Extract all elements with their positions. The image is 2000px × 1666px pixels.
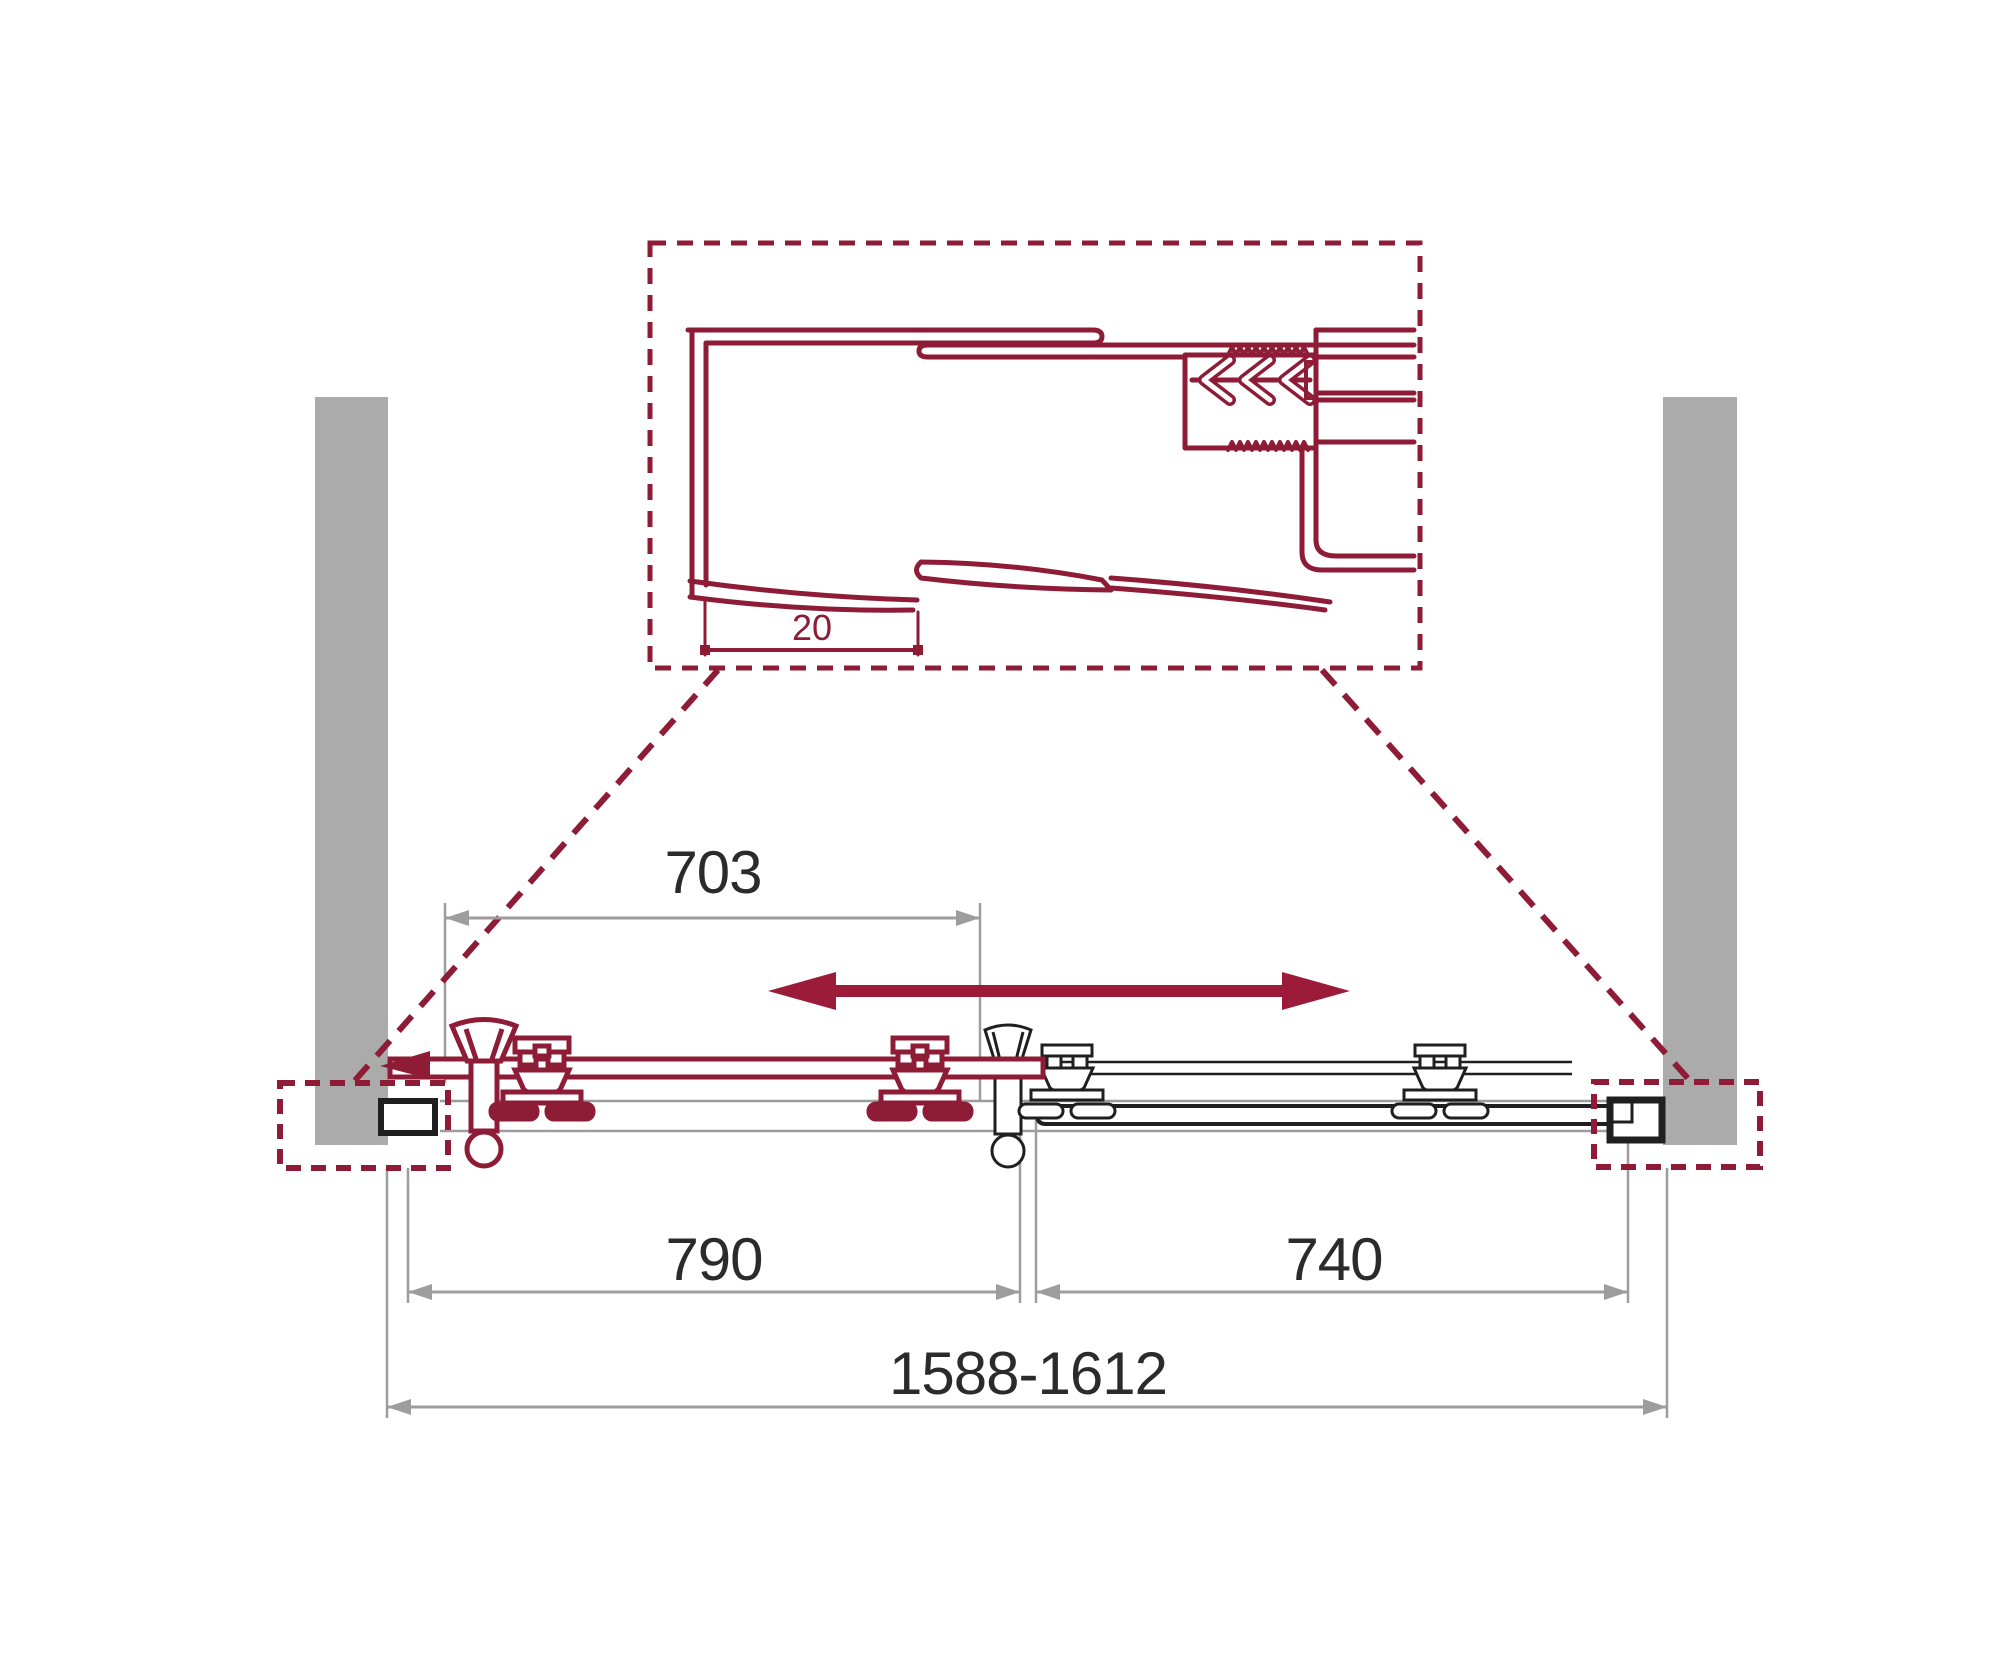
profile-right-double — [1316, 393, 1414, 400]
bottom-seal-right — [1111, 578, 1330, 610]
bottom-seal-left — [690, 581, 917, 610]
profile-top-rail-lower — [919, 345, 1414, 357]
roller-wheel — [1071, 1104, 1115, 1118]
arrowhead-icon — [387, 1399, 411, 1415]
roller-wheel — [1392, 1104, 1436, 1118]
roller-wheel — [547, 1104, 593, 1119]
profile-channel-inner — [1316, 448, 1414, 556]
wall-profile-right — [1610, 1100, 1662, 1140]
wall-right — [1663, 397, 1737, 1145]
callout-line-right — [1322, 670, 1693, 1084]
slide-direction-arrow-icon — [768, 972, 1350, 1010]
dimension-label-overall: 1588-1612 — [889, 1340, 1167, 1407]
fixed-panel-glass — [1037, 1106, 1612, 1124]
shower-door-diagram: 20 — [0, 0, 2000, 1666]
diagram-canvas: 20 — [0, 0, 2000, 1666]
sliding-door — [380, 1020, 1043, 1167]
fixed-panel-track — [1047, 1062, 1572, 1074]
fixed-panel-knob — [985, 1025, 1031, 1167]
bottom-seal-flipper — [917, 562, 1112, 590]
arrowhead-icon — [1604, 1284, 1628, 1300]
roller-wheel — [925, 1104, 971, 1119]
dimension-label-790: 790 — [665, 1226, 762, 1293]
profile-top-rail-upper — [688, 330, 1102, 343]
dimension-label-703: 703 — [664, 839, 761, 906]
roller-wheel — [1019, 1104, 1063, 1118]
arrowhead-icon — [996, 1284, 1020, 1300]
arrowhead-icon — [445, 910, 469, 926]
arrowhead-icon — [956, 910, 980, 926]
roller-wheel — [1444, 1104, 1488, 1118]
arrowhead-icon — [1036, 1284, 1060, 1300]
roller-wheel — [869, 1104, 915, 1119]
roller-wheel — [491, 1104, 537, 1119]
arrowhead-icon — [408, 1284, 432, 1300]
callout-line-left — [350, 670, 718, 1086]
detail-dimension-label: 20 — [792, 607, 832, 648]
wall-left — [315, 397, 388, 1145]
wall-profile-left — [381, 1101, 435, 1133]
arrowhead-icon — [1643, 1399, 1667, 1415]
dimension-label-740: 740 — [1285, 1226, 1382, 1293]
